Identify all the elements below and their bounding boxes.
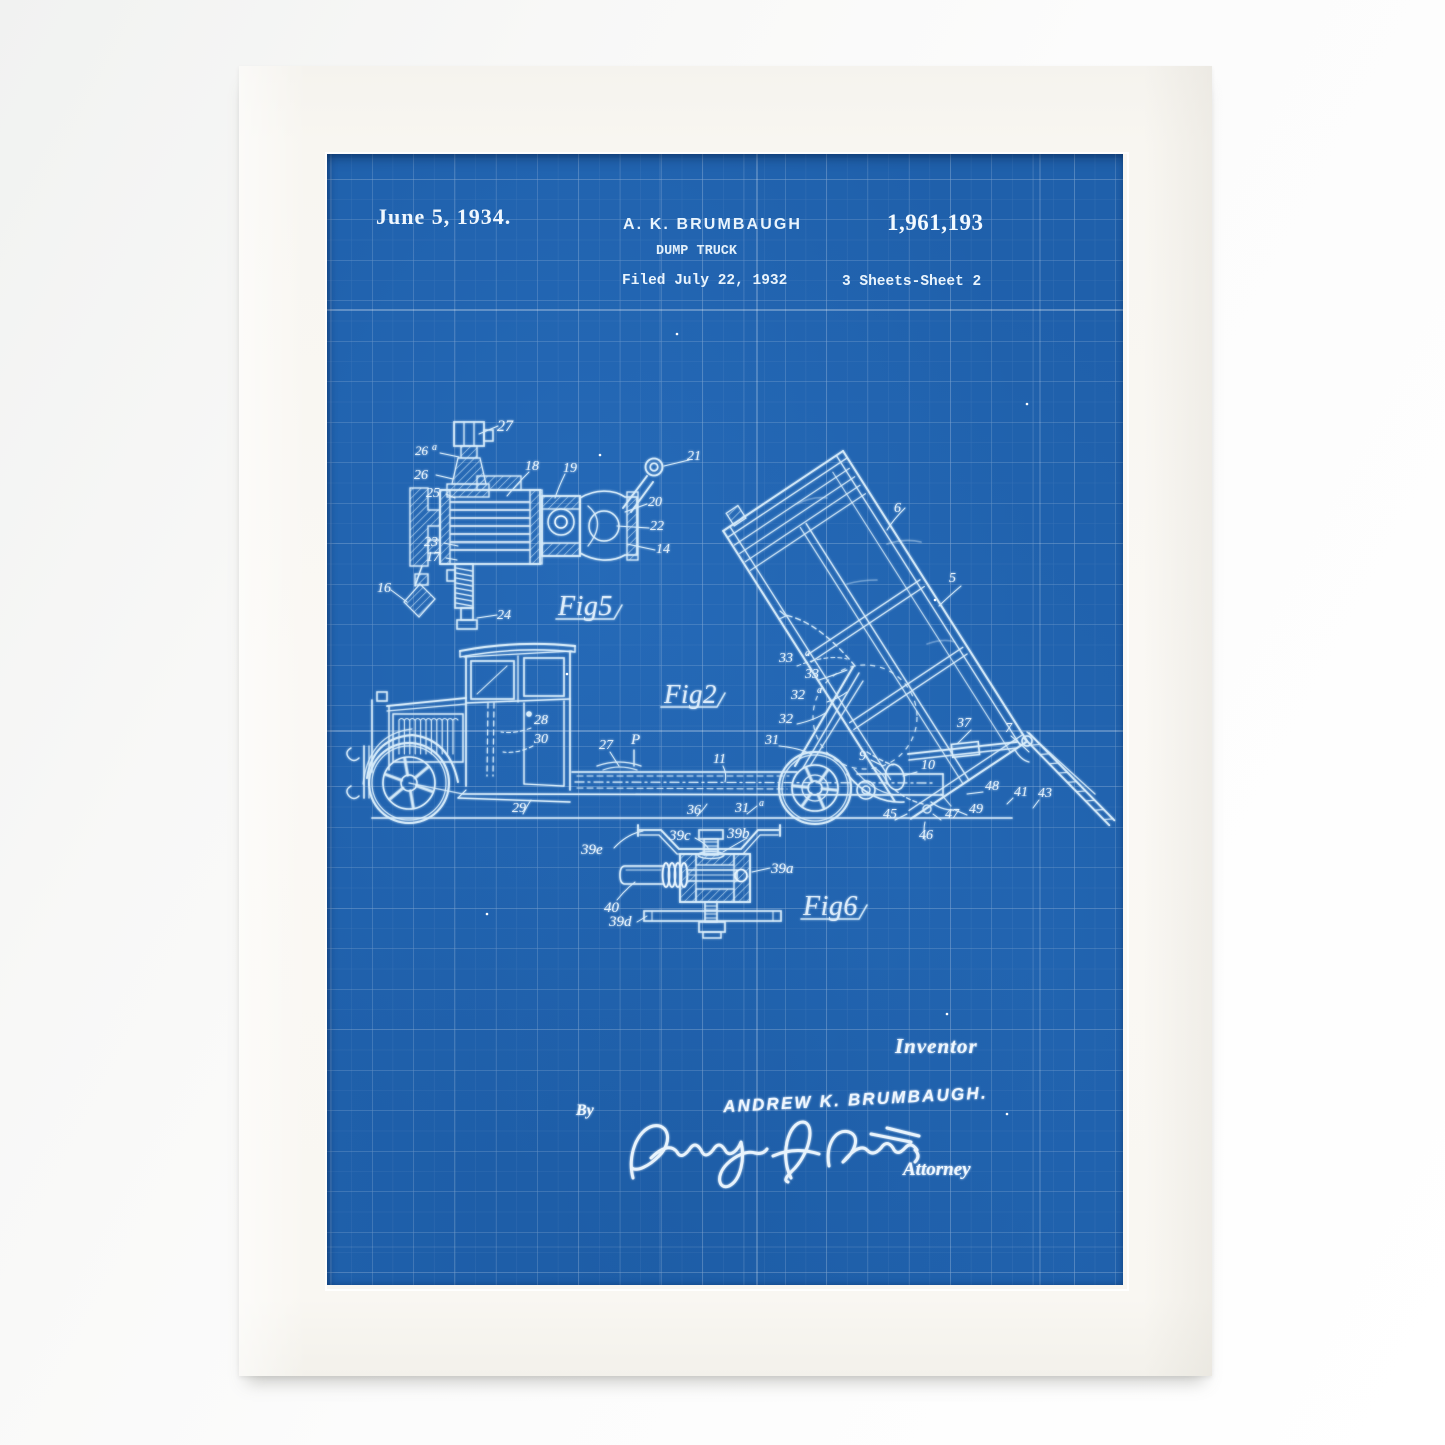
svg-text:43: 43 bbox=[1038, 786, 1052, 801]
svg-text:Filed July 22, 1932: Filed July 22, 1932 bbox=[622, 273, 787, 289]
svg-text:A. K. BRUMBAUGH: A. K. BRUMBAUGH bbox=[623, 216, 802, 233]
svg-text:33: 33 bbox=[778, 651, 793, 666]
svg-text:7: 7 bbox=[1005, 721, 1013, 736]
svg-text:33: 33 bbox=[804, 667, 819, 682]
svg-text:31: 31 bbox=[764, 733, 779, 748]
svg-text:9: 9 bbox=[859, 749, 866, 764]
svg-text:26: 26 bbox=[414, 468, 428, 483]
svg-text:a: a bbox=[817, 685, 822, 696]
svg-text:a: a bbox=[759, 798, 764, 809]
svg-text:32: 32 bbox=[790, 688, 805, 703]
svg-text:32: 32 bbox=[778, 712, 793, 727]
svg-text:28: 28 bbox=[534, 713, 548, 728]
svg-text:16: 16 bbox=[377, 581, 391, 596]
svg-text:3 Sheets-Sheet 2: 3 Sheets-Sheet 2 bbox=[842, 274, 981, 290]
svg-text:1,961,193: 1,961,193 bbox=[887, 210, 984, 235]
svg-text:39c: 39c bbox=[668, 828, 691, 844]
svg-text:Fig5: Fig5 bbox=[557, 591, 613, 622]
svg-text:By: By bbox=[575, 1102, 595, 1119]
svg-text:23: 23 bbox=[424, 535, 438, 550]
svg-text:48: 48 bbox=[985, 779, 999, 794]
svg-text:49: 49 bbox=[969, 802, 983, 817]
svg-text:DUMP TRUCK: DUMP TRUCK bbox=[656, 244, 738, 259]
svg-text:36: 36 bbox=[686, 803, 701, 818]
svg-text:Fig2: Fig2 bbox=[663, 679, 717, 709]
svg-text:Fig6: Fig6 bbox=[802, 891, 858, 922]
svg-text:47: 47 bbox=[945, 807, 960, 822]
svg-text:a: a bbox=[432, 442, 437, 453]
svg-text:19: 19 bbox=[563, 461, 577, 476]
svg-text:39d: 39d bbox=[608, 914, 632, 930]
svg-text:17: 17 bbox=[426, 550, 441, 565]
svg-text:20: 20 bbox=[648, 495, 662, 510]
svg-text:a: a bbox=[805, 648, 810, 659]
svg-text:29: 29 bbox=[512, 801, 526, 816]
svg-text:27: 27 bbox=[599, 738, 614, 753]
svg-text:24: 24 bbox=[497, 608, 511, 623]
svg-text:41: 41 bbox=[1014, 785, 1028, 800]
svg-text:10: 10 bbox=[921, 758, 935, 773]
svg-text:21: 21 bbox=[687, 449, 701, 464]
svg-text:27: 27 bbox=[497, 418, 514, 435]
svg-text:5: 5 bbox=[949, 571, 956, 586]
svg-text:June 5, 1934.: June 5, 1934. bbox=[376, 204, 511, 229]
svg-text:39a: 39a bbox=[770, 861, 794, 877]
svg-text:25: 25 bbox=[426, 486, 440, 501]
svg-text:37: 37 bbox=[956, 716, 972, 731]
svg-text:26: 26 bbox=[415, 443, 429, 458]
svg-text:22: 22 bbox=[650, 519, 664, 534]
svg-text:46: 46 bbox=[919, 828, 933, 843]
svg-text:P: P bbox=[630, 732, 640, 748]
svg-text:30: 30 bbox=[533, 732, 548, 747]
svg-text:18: 18 bbox=[525, 459, 539, 474]
svg-text:Attorney: Attorney bbox=[902, 1159, 971, 1180]
svg-text:14: 14 bbox=[656, 542, 670, 557]
svg-text:11: 11 bbox=[713, 752, 726, 767]
svg-text:39e: 39e bbox=[580, 842, 603, 858]
svg-text:Inventor: Inventor bbox=[894, 1034, 978, 1058]
svg-text:39b: 39b bbox=[726, 826, 750, 842]
